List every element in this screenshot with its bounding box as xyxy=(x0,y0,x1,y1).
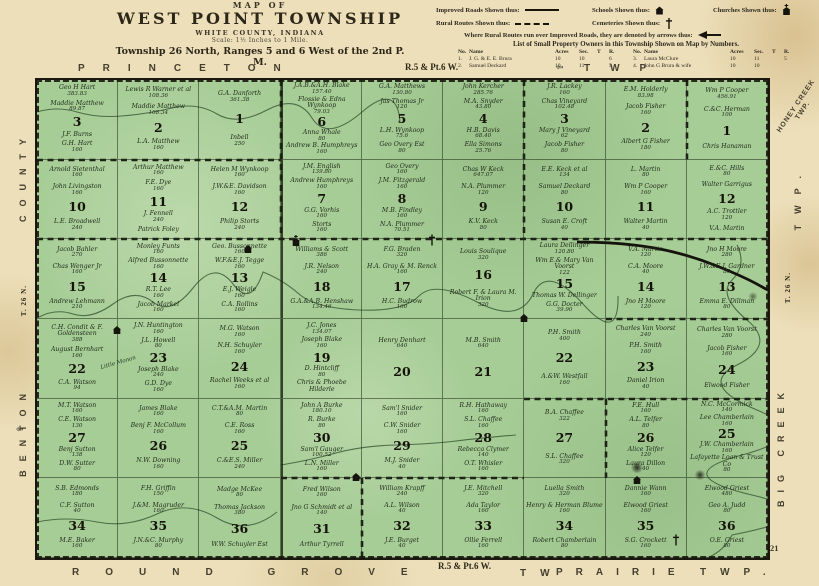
section-r6-36: Madge McKee80Thomas Jackson38036W.W. Sch… xyxy=(199,478,280,558)
county-subtitle: WHITE COUNTY, INDIANA xyxy=(110,30,410,37)
owner-label: Lewis R Warner et al108.36 xyxy=(126,87,192,99)
owners-col-header: No. xyxy=(633,49,642,56)
section-r6-2: Lewis R Warner et al108.36Maddie Matthew… xyxy=(118,80,199,160)
section-r5-3: J.R. Lackey160Chas Vineyard102.483Mary J… xyxy=(524,80,605,160)
section-r5-20: Henry Denhart64020 xyxy=(362,319,443,399)
section-r5-13: Jno H Moore280J.W.&E.J. Gardner8013Emma … xyxy=(687,239,768,319)
school-icon xyxy=(655,6,664,15)
section-number: 21 xyxy=(475,366,492,379)
church-icon xyxy=(292,235,301,247)
route-arrow-icon: ⇦ xyxy=(16,425,24,435)
owner-label: Rebecca Clymer140 xyxy=(458,447,509,459)
owner-label: A.&W. Westfall160 xyxy=(541,374,587,386)
owner-label: D. Hintcliff80 xyxy=(305,366,339,378)
school-icon xyxy=(520,314,529,323)
section-r6-11: Arthur Matthew160F.E. Dye16011J. Fennell… xyxy=(118,160,199,240)
owner-label: Susan E. Croft40 xyxy=(542,219,588,231)
section-r6-35: F.H. Griffin150J.&M. Magruder16035J.N.&C… xyxy=(118,478,199,558)
section-r6-24: M.G. Watson160N.H. Schuyler16024Rachel W… xyxy=(199,319,280,399)
owner-label: S.L. Chaffee320 xyxy=(545,454,583,466)
church-icon xyxy=(782,4,791,16)
owner-label: Madge McKee80 xyxy=(217,487,262,499)
section-number: 30 xyxy=(313,432,330,445)
owner-label: Laura Dellinger120.80 xyxy=(540,243,590,255)
section-number: 20 xyxy=(393,366,410,379)
section-number: 1 xyxy=(723,125,732,138)
section-number: 13 xyxy=(718,281,735,294)
section-r5-26: F.E. Hull160A.L. Telfer8026Alice Telfer1… xyxy=(606,399,687,479)
owners-cell-name: Samuel Deckard xyxy=(469,63,553,70)
owner-label: Chas Wenger Jr160 xyxy=(53,264,102,276)
owner-label: C.E. Watson130 xyxy=(58,417,96,429)
owner-label: Andrew Humphreys160 xyxy=(290,178,353,190)
owners-cell-t xyxy=(772,63,782,70)
owner-label: Jas Thomas Jr120 xyxy=(380,99,423,111)
section-number: 26 xyxy=(150,440,167,453)
owner-label: Henry Denhart640 xyxy=(378,338,425,350)
owner-label: Wm P Cooper456.91 xyxy=(705,88,748,100)
owner-label: C.H. Condit & F. Goldensteen388 xyxy=(38,325,116,344)
section-number: 12 xyxy=(231,201,248,214)
border-right-twp: TWP. xyxy=(793,165,803,230)
cemetery-icon xyxy=(665,18,673,29)
section-r5-11: L. Martin80Wm P Cooper16011Walter Martin… xyxy=(606,160,687,240)
owner-label: Williams & Scott386 xyxy=(295,247,348,259)
owner-label: N.A. Plummer70.51 xyxy=(380,222,424,234)
owner-label: L. Martin80 xyxy=(631,167,660,179)
owners-cell-name: J. G. & E. E. Brura xyxy=(469,56,553,63)
section-number: 25 xyxy=(718,428,735,441)
owner-label: Jacob Fisher80 xyxy=(545,142,584,154)
owner-label: F.G. Braden320 xyxy=(384,247,421,259)
section-r5-15: Laura Dellinger120.80Wm E.& Mary Van Voo… xyxy=(524,239,605,319)
section-number: 23 xyxy=(150,352,167,365)
owners-cell-no: 1. xyxy=(458,56,467,63)
plat-map-page: MAP OF WEST POINT TOWNSHIP WHITE COUNTY,… xyxy=(0,0,819,586)
owner-label: Elwood Griest160 xyxy=(623,503,667,515)
owner-label: A.C. Trottler120 xyxy=(707,209,746,221)
owners-col-header: Name xyxy=(469,49,553,56)
owner-label: V.A. Martin xyxy=(709,226,744,233)
owner-label: Rachel Weeks et al160 xyxy=(210,378,269,390)
section-r5-19: J.C. Jones134.07Joseph Blake16019D. Hint… xyxy=(281,319,362,399)
owner-label: C.W. Snider160 xyxy=(384,423,420,435)
owners-cell-acres: 10 xyxy=(730,63,752,70)
owner-label: Henry & Herman Blume160 xyxy=(526,503,603,515)
section-number: 5 xyxy=(398,113,407,126)
section-r6-25: C.T.&A.M. Martin80C.E. Ross16025C.&E.S. … xyxy=(199,399,280,479)
owner-label: M.B. Findley160 xyxy=(382,208,422,220)
owner-label: Benj Sutton138 xyxy=(59,447,96,459)
border-bottom-round-grove: ROUND GROVE xyxy=(72,567,434,578)
owner-label: C.E. Ross160 xyxy=(225,423,255,435)
section-number: 26 xyxy=(637,432,654,445)
section-number: 11 xyxy=(150,196,167,209)
section-r6-3: Geo H Hart383.83Maddie Matthew89.873J.F.… xyxy=(37,80,118,160)
legend: Improved Roads Shown thus: Schools Shown… xyxy=(436,4,816,70)
owner-label: M.G. Watson160 xyxy=(220,326,260,338)
owners-cell-name: Laura McClure xyxy=(644,56,728,63)
owners-cell-r xyxy=(784,63,794,70)
owner-label: Arnold Sietenthal160 xyxy=(50,167,105,179)
owners-list-title: List of Small Property Owners in this To… xyxy=(436,41,816,48)
section-number: 22 xyxy=(556,352,573,365)
owner-label: J.F. Burns xyxy=(62,132,92,139)
section-r6-15: Jacob Bahler270Chas Wenger Jr16015Andrew… xyxy=(37,239,118,319)
owner-label: F.E. Dye160 xyxy=(145,180,171,192)
section-number: 28 xyxy=(475,432,492,445)
owner-label: G.A.&A.B. Henshaw134.46 xyxy=(290,299,353,311)
owner-label: M.E. Baker160 xyxy=(59,538,94,550)
ink-stain xyxy=(630,462,644,473)
owner-label: Chris Hanaman xyxy=(702,144,751,151)
owner-label: J.R. Nelson240 xyxy=(305,264,340,276)
border-right-honey-creek: HONEY CREEK TWP. xyxy=(776,78,819,139)
owner-label: D.W. Sutter80 xyxy=(59,461,95,473)
owners-col-header: Sec. xyxy=(754,49,770,56)
owner-label: Elwood Griest480 xyxy=(705,486,749,498)
section-r6-27: M.T. Watson160C.E. Watson13027Benj Sutto… xyxy=(37,399,118,479)
owner-label: P.H. Smith160 xyxy=(629,343,662,355)
owner-label: Anna Whale80 xyxy=(303,130,341,142)
section-number: 19 xyxy=(313,352,330,365)
owner-label: E.J. Weigle160 xyxy=(223,287,257,299)
owner-label: Wm P Cooper160 xyxy=(624,184,667,196)
owner-label: Ada Taylor160 xyxy=(466,503,500,515)
owner-label: Mary J Vineyard62 xyxy=(539,128,590,140)
border-bottom-range: R.5 & Pt.6 W. xyxy=(438,561,491,571)
owners-col-header: Acres xyxy=(730,49,752,56)
owner-label: F.H. Griffin150 xyxy=(141,486,176,498)
section-number: 8 xyxy=(398,193,407,206)
owner-label: L.N. Miller160 xyxy=(305,461,339,473)
border-left-t26n: T. 26 N. xyxy=(20,285,28,316)
owner-label: Thomas Jackson380 xyxy=(214,505,265,517)
owner-label: Albert G Fisher180 xyxy=(621,139,669,151)
owner-label: Samuel Deckard80 xyxy=(539,184,591,196)
legend-improved-roads-label: Improved Roads Shown thus: xyxy=(436,7,520,14)
section-number: 11 xyxy=(637,201,654,214)
section-r5-25: N.C. McCormick140Lee Chamberlain16025J.W… xyxy=(687,399,768,479)
owner-label: J.A.B.&A.H. Blake157.40 xyxy=(294,83,350,95)
owner-label: Walter Garrigus xyxy=(702,182,752,189)
legend-churches-label: Churches Shown thus: xyxy=(713,7,777,14)
owner-label: Charles Van Voorst240 xyxy=(616,326,676,338)
section-number: 27 xyxy=(68,432,85,445)
owner-label: J.N.&C. Murphy80 xyxy=(134,538,184,550)
section-number: 13 xyxy=(231,272,248,285)
border-top-princeton: PRINCETON xyxy=(78,63,299,74)
owner-label: L.E. Broadwell240 xyxy=(54,219,100,231)
owner-label: Andrew Lehmann210 xyxy=(49,299,105,311)
owner-label: B.A. Chaffee322 xyxy=(545,410,584,422)
owner-label: C.&C. Herman100 xyxy=(704,107,750,119)
owner-label: Ella Simons25.76 xyxy=(465,142,502,154)
owners-col-header: Sec. xyxy=(579,49,595,56)
border-right-big-creek: BIG CREEK xyxy=(776,385,786,507)
owner-label: Arthur Matthew160 xyxy=(133,165,184,177)
owner-label: S.L. Chaffee160 xyxy=(464,417,502,429)
section-r6-26: James Blake160Benj F. McCollum16026N.W. … xyxy=(118,399,199,479)
owner-label: Wm E.& Mary Van Voorst122 xyxy=(525,258,603,277)
owner-label: Robert F. & Laura M. Irion320 xyxy=(444,290,522,309)
owners-cell-t xyxy=(597,56,607,63)
owners-col-header: R. xyxy=(784,49,794,56)
owner-label: E.M. Holderly83.98 xyxy=(624,87,668,99)
border-bottom-twp: TWP. xyxy=(700,567,780,578)
owners-cell-r: 5 xyxy=(784,56,794,63)
owner-label: Lee Chamberlain160 xyxy=(700,415,754,427)
owner-label: M.B. Smith640 xyxy=(466,338,501,350)
section-number: 1 xyxy=(235,113,244,126)
owner-label: S.B. Edmonds180 xyxy=(55,486,99,498)
section-r5-30: John A Burke180.10R. Burke8030Sam'l Gaug… xyxy=(281,399,362,479)
owner-label: Fred Wilson160 xyxy=(303,487,341,499)
ink-stain xyxy=(694,470,706,480)
section-r5-14: V.A. Martin120C.A. Moore4014Jno H Moore1… xyxy=(606,239,687,319)
owner-label: Geo. Bussonnette160 xyxy=(212,244,267,256)
owner-label: M.A. Snyder43.80 xyxy=(464,99,503,111)
owner-label: Monley Funts160 xyxy=(137,244,180,256)
owner-label: A.L. Telfer80 xyxy=(629,417,662,429)
owner-label: G.A. Matthews130.80 xyxy=(379,84,425,96)
owner-label: Jacob Fisher160 xyxy=(626,104,665,116)
owner-label: J.M. English139.80 xyxy=(303,164,341,176)
owner-label: J.E. Burget40 xyxy=(385,538,419,550)
section-r5-17: F.G. Braden320H.A. Gray & M. Renck16017H… xyxy=(362,239,443,319)
owner-label: Joseph Blake160 xyxy=(301,337,342,349)
owner-label: Inbell250 xyxy=(231,135,249,147)
owner-label: G.A. Danforth361.38 xyxy=(218,91,261,103)
owner-label: James Blake160 xyxy=(139,406,177,418)
owner-label: L.H. Wynkoop75.6 xyxy=(380,128,424,140)
section-number: 36 xyxy=(718,520,735,533)
owner-label: Storts160 xyxy=(312,222,331,234)
owner-label: Alice Telfer120 xyxy=(628,447,664,459)
owner-label: O.E. Griest80 xyxy=(710,538,744,550)
owner-label: N.W. Downing160 xyxy=(136,458,180,470)
legend-arrows-note: Where Rural Routes run over Improved Roa… xyxy=(464,32,693,39)
owner-label: Geo H Hart383.83 xyxy=(59,85,95,97)
owner-label: John Livingston160 xyxy=(53,184,102,196)
owner-label: E.&C. Hills80 xyxy=(709,166,744,178)
owner-label: H.C. Budrow160 xyxy=(382,299,422,311)
owner-label: J.W. Chamberlain160 xyxy=(700,442,754,454)
page-number: 21 xyxy=(770,543,779,553)
border-top-range: R.5 & Pt.6 W. xyxy=(405,62,458,72)
section-r5-33: J.E. Mitchell320Ada Taylor16033Ollie Fer… xyxy=(443,478,524,558)
section-r5-6: J.A.B.&A.H. Blake157.40Flossie & Edna Wy… xyxy=(281,80,362,160)
owner-label: R.T. Lee160 xyxy=(146,287,171,299)
owner-label: N.C. McCormick140 xyxy=(701,402,753,414)
owner-label: M.J. Snider40 xyxy=(384,458,419,470)
owner-label: A.L. Wilson40 xyxy=(384,503,420,515)
owner-label: Emma E. Dillman80 xyxy=(699,299,754,311)
section-r6-10: Arnold Sietenthal160John Livingston16010… xyxy=(37,160,118,240)
owner-label: R.H. Hathaway160 xyxy=(459,403,507,415)
section-number: 15 xyxy=(556,278,573,291)
section-r6-1: G.A. Danforth361.381Inbell250 xyxy=(199,80,280,160)
owner-label: Thomas W. Dellinger xyxy=(532,293,597,300)
owners-cell-sec: 10 xyxy=(754,63,770,70)
owner-label: N.H. Schuyler160 xyxy=(218,343,262,355)
owner-label: J.M. Fitzgerald160 xyxy=(379,178,425,190)
section-r5-23: Charles Van Voorst240P.H. Smith16023Dani… xyxy=(606,319,687,399)
owner-label: Dannie Wann160 xyxy=(625,486,667,498)
section-r6-22: C.H. Condit & F. Goldensteen388August Be… xyxy=(37,319,118,399)
section-r5-21: M.B. Smith64021 xyxy=(443,319,524,399)
owner-label: William Krapff240 xyxy=(379,486,424,498)
route-arrow-icon xyxy=(698,31,722,39)
school-icon xyxy=(633,476,642,485)
section-number: 12 xyxy=(718,193,735,206)
owner-label: Sam'l Gauger100.52 xyxy=(300,447,343,459)
section-r5-1: Wm P Cooper456.91C.&C. Herman1001Chris H… xyxy=(687,80,768,160)
owner-label: Chas Vineyard102.48 xyxy=(542,99,588,111)
legend-cemeteries-label: Cemeteries Shown thus: xyxy=(592,20,660,27)
section-number: 34 xyxy=(68,520,85,533)
section-number: 17 xyxy=(393,281,410,294)
scale-note: Scale: 1½ Inches to 1 Mile. xyxy=(110,38,410,45)
owner-label: H.B. Davis68.40 xyxy=(467,128,500,140)
section-number: 2 xyxy=(641,122,650,135)
owner-label: August Bernhart160 xyxy=(51,347,103,359)
section-r5-18: Williams & Scott386J.R. Nelson24018G.A.&… xyxy=(281,239,362,319)
section-r5-29: Sam'l Snider160C.W. Snider16029M.J. Snid… xyxy=(362,399,443,479)
owner-label: Luella Smith320 xyxy=(544,486,584,498)
border-right-t26n: T. 26 N. xyxy=(784,272,792,303)
section-number: 2 xyxy=(154,122,163,135)
owners-cell-r: 6 xyxy=(609,56,619,63)
owner-label: Flossie & Edna Wynkoop79.03 xyxy=(284,97,360,116)
section-number: 9 xyxy=(479,201,488,214)
section-r5-28: R.H. Hathaway160S.L. Chaffee16028Rebecca… xyxy=(443,399,524,479)
owner-label: Chris & Phoebe Hilderle xyxy=(284,380,360,393)
section-number: 16 xyxy=(475,269,492,282)
section-number: 6 xyxy=(317,116,326,129)
section-number: 35 xyxy=(150,520,167,533)
section-number: 33 xyxy=(475,520,492,533)
owner-label: Patrick Foley xyxy=(138,227,179,234)
owner-label: Jacob Markel160 xyxy=(137,302,179,314)
rural-route-symbol xyxy=(515,23,549,25)
owners-cell-acres: 10 xyxy=(555,56,577,63)
improved-road-symbol xyxy=(525,9,559,11)
owner-label: J.E. Mitchell320 xyxy=(464,486,502,498)
owners-cell-no: 2. xyxy=(458,63,467,70)
owner-label: Helen M Wynkoop160 xyxy=(211,167,269,179)
section-r5-10: E.E. Keck et al134Samuel Deckard8010Susa… xyxy=(524,160,605,240)
owner-label: S.G. Crockett160 xyxy=(625,538,667,550)
owner-label: Chas W Keck647.07 xyxy=(463,167,504,179)
owner-label: John Kercher285.76 xyxy=(463,84,504,96)
owners-cell-no: 3. xyxy=(633,56,642,63)
section-number: 4 xyxy=(479,113,488,126)
section-number: 3 xyxy=(73,116,82,129)
section-number: 34 xyxy=(556,520,573,533)
owner-label: H.A. Gray & M. Renck160 xyxy=(367,264,437,276)
section-r5-32: William Krapff240A.L. Wilson4032J.E. Bur… xyxy=(362,478,443,558)
owner-label: J.L. Howell80 xyxy=(141,338,175,350)
section-r5-5: G.A. Matthews130.80Jas Thomas Jr1205L.H.… xyxy=(362,80,443,160)
owner-label: R. Burke80 xyxy=(308,417,336,429)
owner-label: Geo A. Judd80 xyxy=(708,503,745,515)
section-r5-7: J.M. English139.80Andrew Humphreys1607G.… xyxy=(281,160,362,240)
owner-label: Ollie Ferrell160 xyxy=(464,538,502,550)
owner-label: Arthur Tyrrell xyxy=(300,542,344,549)
owner-label: Elwood Fisher xyxy=(704,383,749,390)
owner-label: Jacob Bahler270 xyxy=(57,247,97,259)
owner-label: Jno H Moore280 xyxy=(707,247,747,259)
section-number: 29 xyxy=(393,440,410,453)
owner-label: Walter Martin40 xyxy=(624,219,668,231)
section-number: 24 xyxy=(231,361,248,374)
owner-label: C.A. Moore40 xyxy=(628,264,663,276)
owner-label: L.A. Matthew160 xyxy=(137,139,179,151)
section-r6-14: Monley Funts160Alfred Bussonnette16014R.… xyxy=(118,239,199,319)
owner-label: C.&E.S. Miller240 xyxy=(217,458,262,470)
owner-label: Jno G Schmidt et al140 xyxy=(291,505,352,517)
owner-label: Alfred Bussonnette160 xyxy=(128,258,188,270)
section-number: 32 xyxy=(393,520,410,533)
owner-label: F.E. Hull160 xyxy=(632,403,659,415)
section-number: 15 xyxy=(68,281,85,294)
owners-col-header: Name xyxy=(644,49,728,56)
owner-label: J.W.&E. Davidson160 xyxy=(212,184,266,196)
owner-label: Charles Van Voorst280 xyxy=(697,327,757,339)
section-r5-31: Fred Wilson160Jno G Schmidt et al14031Ar… xyxy=(281,478,362,558)
owner-label: J.W.&E.J. Gardner80 xyxy=(699,264,754,276)
owner-label: C.T.&A.M. Martin80 xyxy=(212,406,267,418)
route-arrow-icon: ⇦ xyxy=(556,63,564,73)
owner-label: Daniel Irion40 xyxy=(627,378,664,390)
owner-label: G.G. Docter39.90 xyxy=(546,302,583,314)
owner-label: C.A. Watson94 xyxy=(58,380,96,392)
section-number: 7 xyxy=(317,193,326,206)
owner-label: Maddie Matthew108.34 xyxy=(132,104,186,116)
owner-label: J.R. Lackey160 xyxy=(547,84,582,96)
owner-label: Louis Soulique320 xyxy=(460,249,506,261)
section-r6-34: S.B. Edmonds180C.F. Sutton4034M.E. Baker… xyxy=(37,478,118,558)
school-icon xyxy=(113,326,122,335)
owner-label: John A Burke180.10 xyxy=(301,403,342,415)
section-r5-4: John Kercher285.76M.A. Snyder43.804H.B. … xyxy=(443,80,524,160)
owner-label: W.W. Schuyler Est xyxy=(211,542,267,549)
owners-col-header: T xyxy=(597,49,607,56)
section-number: 23 xyxy=(637,361,654,374)
section-number: 3 xyxy=(560,113,569,126)
section-r5-2: E.M. Holderly83.98Jacob Fisher1602Albert… xyxy=(606,80,687,160)
section-number: 22 xyxy=(68,363,85,376)
owner-label: N.A. Plummer120 xyxy=(461,184,505,196)
section-number: 25 xyxy=(231,440,248,453)
cemetery-icon xyxy=(672,535,680,546)
owner-label: Jno H Moore120 xyxy=(626,299,666,311)
owner-label: P.H. Smith400 xyxy=(548,330,581,342)
owner-label: E.E. Keck et al134 xyxy=(541,167,587,179)
owner-label: G.D. Dye160 xyxy=(145,381,172,393)
owner-label: Benj F. McCollum160 xyxy=(131,423,186,435)
owner-label: Jacob Fisher160 xyxy=(707,346,746,358)
owner-label: W.F.&E.J. Tegge160 xyxy=(215,258,264,270)
owners-col-header: Acres xyxy=(555,49,577,56)
section-number: 35 xyxy=(637,520,654,533)
section-r5-9: Chas W Keck647.07N.A. Plummer1209K.V. Ke… xyxy=(443,160,524,240)
section-number: 31 xyxy=(313,523,330,536)
owner-label: Joseph Blake240 xyxy=(138,367,179,379)
section-r6-13: Geo. Bussonnette160W.F.&E.J. Tegge16013E… xyxy=(199,239,280,319)
section-number: 10 xyxy=(556,201,573,214)
